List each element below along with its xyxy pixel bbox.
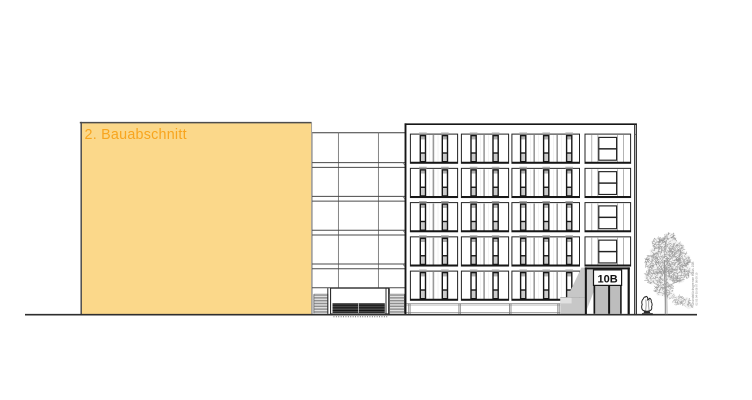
svg-text:Grundstücksgrenze Haus 10B: Grundstücksgrenze Haus 10B: [691, 261, 695, 306]
svg-text:10B: 10B: [598, 273, 618, 285]
svg-text:2. Bauabschnitt: 2. Bauabschnitt: [85, 127, 187, 143]
svg-text:02 03 04 05 06 07 08 09 10: 02 03 04 05 06 07 08 09 10: [695, 272, 699, 305]
